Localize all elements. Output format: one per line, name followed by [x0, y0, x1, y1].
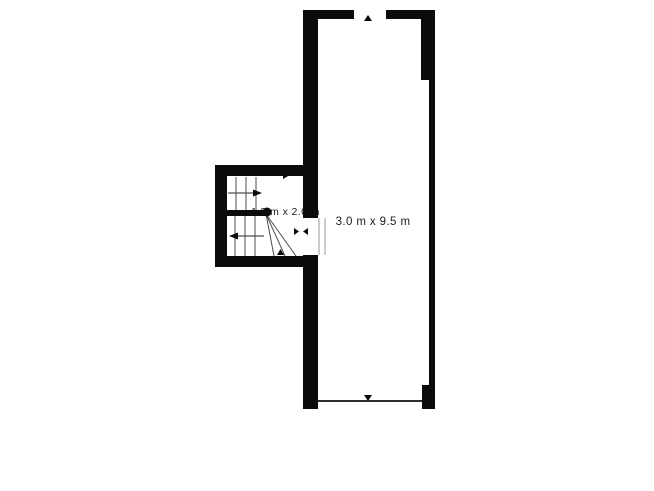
stair-wall-top	[215, 165, 303, 176]
stair-up-direction-arrow-icon	[228, 190, 262, 197]
doorway-opening-markers-icon	[294, 228, 308, 235]
top-window-marker-icon	[364, 15, 372, 21]
wall-right-bottom-stub	[422, 385, 435, 409]
doorway-frame	[319, 218, 325, 255]
wall-left-upper	[303, 10, 318, 218]
stair-and-symbols-layer	[0, 0, 654, 491]
stair-mid-divider	[227, 210, 266, 216]
stair-wall-bottom	[215, 256, 303, 267]
stair-lower-direction-arrow-icon	[229, 233, 264, 240]
wall-bottom-left-stub	[303, 385, 318, 409]
stair-winder-treads	[266, 214, 296, 256]
wall-right-main	[429, 10, 435, 404]
stair-wall-left	[215, 165, 227, 267]
bottom-window-sill	[318, 400, 422, 402]
floor-plan-canvas: 3.0 m x 9.5 m 1.9 m x 2.0 m	[0, 0, 654, 491]
